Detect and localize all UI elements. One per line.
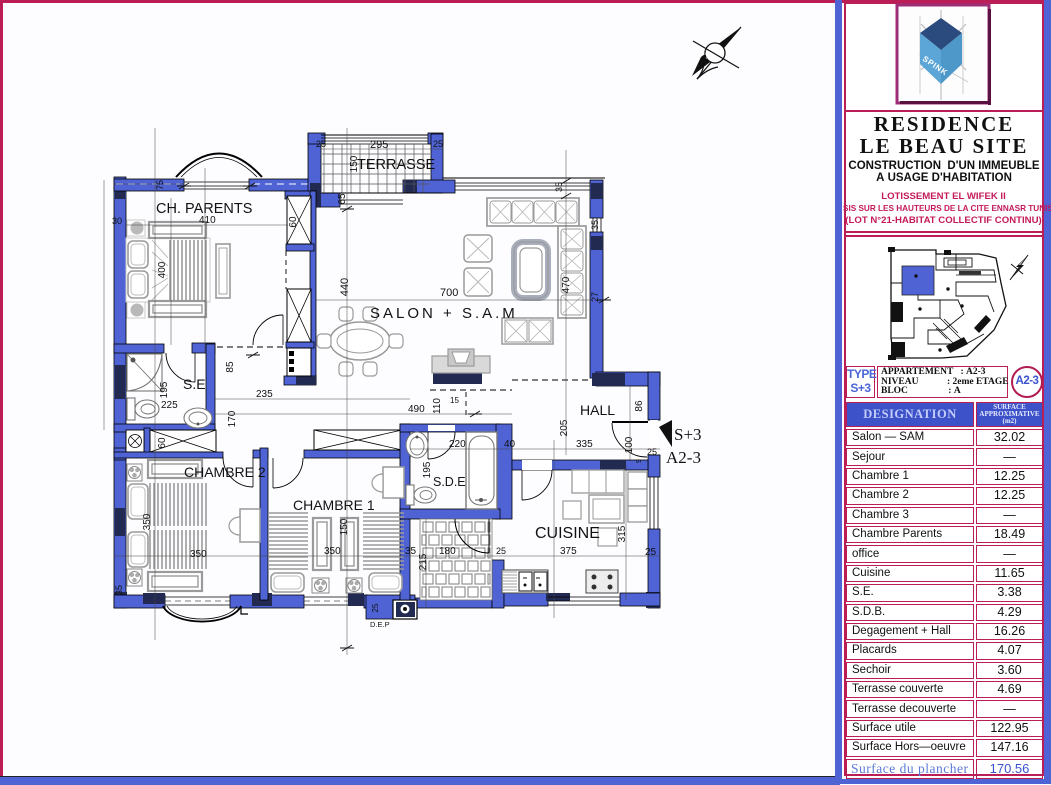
svg-text:150: 150 bbox=[339, 518, 350, 535]
svg-text:375: 375 bbox=[560, 546, 577, 557]
svg-text:S.E: S.E bbox=[183, 376, 206, 392]
svg-text:195: 195 bbox=[422, 461, 433, 478]
svg-text:180: 180 bbox=[439, 546, 456, 557]
svg-text:D.E.P: D.E.P bbox=[370, 620, 390, 629]
svg-text:35: 35 bbox=[590, 220, 600, 230]
svg-text:60: 60 bbox=[288, 216, 299, 228]
svg-text:TERRASSE: TERRASSE bbox=[357, 157, 435, 173]
svg-text:CUISINE: CUISINE bbox=[535, 525, 600, 542]
svg-text:195: 195 bbox=[159, 381, 170, 398]
svg-text:350: 350 bbox=[190, 549, 207, 560]
svg-text:A2-3: A2-3 bbox=[666, 448, 701, 467]
svg-text:15: 15 bbox=[450, 396, 459, 405]
svg-text:CHAMBRE 1: CHAMBRE 1 bbox=[293, 497, 375, 513]
svg-text:315: 315 bbox=[617, 525, 628, 542]
svg-text:25: 25 bbox=[316, 139, 326, 149]
svg-text:220: 220 bbox=[449, 439, 466, 450]
svg-text:440: 440 bbox=[339, 278, 351, 296]
svg-text:85: 85 bbox=[225, 361, 236, 373]
svg-text:35: 35 bbox=[405, 546, 417, 557]
svg-text:27: 27 bbox=[590, 292, 600, 302]
svg-text:700: 700 bbox=[440, 287, 458, 299]
svg-text:SALON + S.A.M: SALON + S.A.M bbox=[370, 305, 518, 322]
svg-text:295: 295 bbox=[370, 139, 388, 151]
svg-text:225: 225 bbox=[161, 400, 178, 411]
svg-text:60: 60 bbox=[157, 437, 168, 449]
svg-text:410: 410 bbox=[199, 215, 216, 226]
svg-text:S.D.E: S.D.E bbox=[433, 475, 466, 489]
svg-text:75: 75 bbox=[155, 180, 165, 190]
svg-text:100: 100 bbox=[624, 436, 635, 453]
svg-text:110: 110 bbox=[432, 398, 443, 414]
svg-text:150: 150 bbox=[349, 155, 360, 172]
svg-text:25: 25 bbox=[433, 139, 443, 149]
svg-text:490: 490 bbox=[408, 404, 425, 415]
svg-text:350: 350 bbox=[324, 546, 341, 557]
svg-text:25: 25 bbox=[371, 603, 380, 612]
svg-text:400: 400 bbox=[157, 261, 168, 278]
svg-text:205: 205 bbox=[559, 419, 570, 436]
svg-text:470: 470 bbox=[561, 276, 572, 293]
svg-text:86: 86 bbox=[634, 400, 645, 412]
svg-text:S+3: S+3 bbox=[674, 425, 702, 444]
svg-text:25: 25 bbox=[496, 546, 506, 556]
svg-text:350: 350 bbox=[142, 513, 153, 530]
svg-text:25: 25 bbox=[645, 547, 657, 558]
svg-text:215: 215 bbox=[418, 553, 429, 570]
svg-text:30: 30 bbox=[112, 216, 122, 226]
svg-text:35: 35 bbox=[114, 585, 124, 595]
svg-text:HALL: HALL bbox=[580, 402, 615, 418]
svg-text:170: 170 bbox=[227, 410, 238, 427]
svg-text:235: 235 bbox=[256, 389, 273, 400]
svg-text:40: 40 bbox=[504, 439, 516, 450]
svg-text:335: 335 bbox=[576, 439, 593, 450]
svg-text:65: 65 bbox=[337, 193, 348, 205]
svg-text:9: 9 bbox=[636, 459, 643, 463]
svg-text:CHAMBRE 2: CHAMBRE 2 bbox=[184, 464, 266, 480]
svg-text:25: 25 bbox=[647, 447, 657, 457]
